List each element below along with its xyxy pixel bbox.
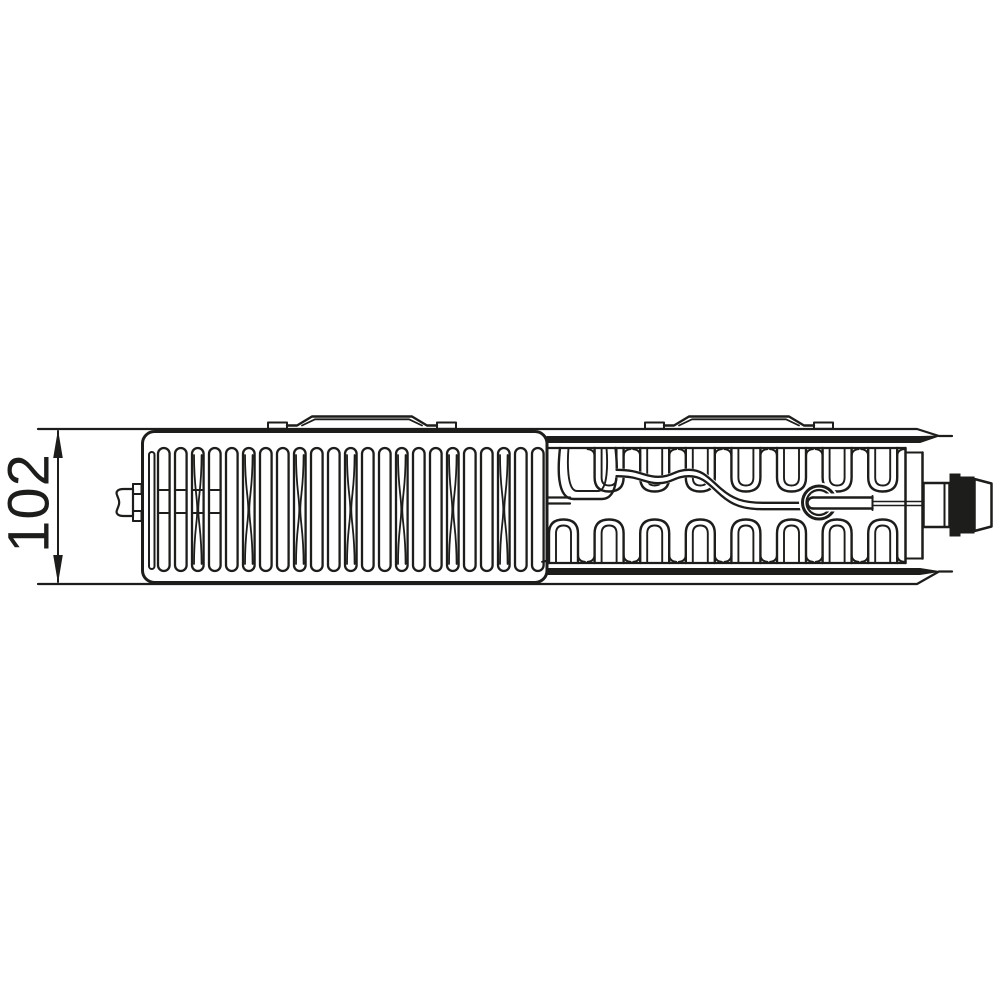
water-plate-top — [547, 436, 939, 443]
radiator-top-section-drawing: 102 — [0, 0, 1000, 1000]
plug-collar-bottom — [133, 511, 142, 521]
convector-fin-top-inner — [602, 448, 617, 486]
convector-fin-bottom-inner — [875, 526, 890, 564]
mounting-brackets — [268, 417, 833, 429]
valve-insert — [924, 474, 992, 537]
convector-fin-bottom-inner — [738, 526, 753, 564]
valve-thread-body — [950, 477, 975, 534]
end-plug — [117, 484, 142, 521]
bracket-profile-inner — [679, 419, 799, 425]
water-channel-stub — [547, 498, 570, 504]
bracket-profile-inner — [302, 419, 422, 425]
diagram-canvas: 102 — [0, 0, 1000, 1000]
valve-cone — [975, 479, 992, 531]
mounting-bracket — [645, 417, 833, 429]
convector-fin-bottom-inner — [830, 526, 845, 564]
dimension-arrow-down — [53, 555, 63, 584]
valve-neck — [924, 483, 950, 527]
convector-fin-top-inner — [830, 448, 845, 486]
bracket-foot-right — [814, 423, 833, 429]
bracket-foot-left — [268, 423, 287, 429]
convector-fin-bottom-inner — [784, 526, 799, 564]
dimension-label: 102 — [0, 453, 62, 553]
convector-fin-bottom-inner — [602, 526, 617, 564]
convector-fin-top-inner — [875, 448, 890, 486]
mounting-bracket — [268, 417, 456, 429]
bracket-foot-left — [645, 423, 664, 429]
water-plate-bottom — [547, 569, 939, 575]
convector-fin-bottom-inner — [556, 526, 571, 564]
convector-fin-bottom-inner — [693, 526, 708, 564]
plug-collar-top — [133, 484, 142, 494]
front-panel-grille — [143, 432, 548, 583]
convector-fin-bottom-inner — [647, 526, 662, 564]
convector-fin-top-inner — [738, 448, 753, 486]
convector-fin-top-inner — [784, 448, 799, 486]
plug-body — [117, 489, 133, 516]
bracket-foot-right — [437, 423, 456, 429]
